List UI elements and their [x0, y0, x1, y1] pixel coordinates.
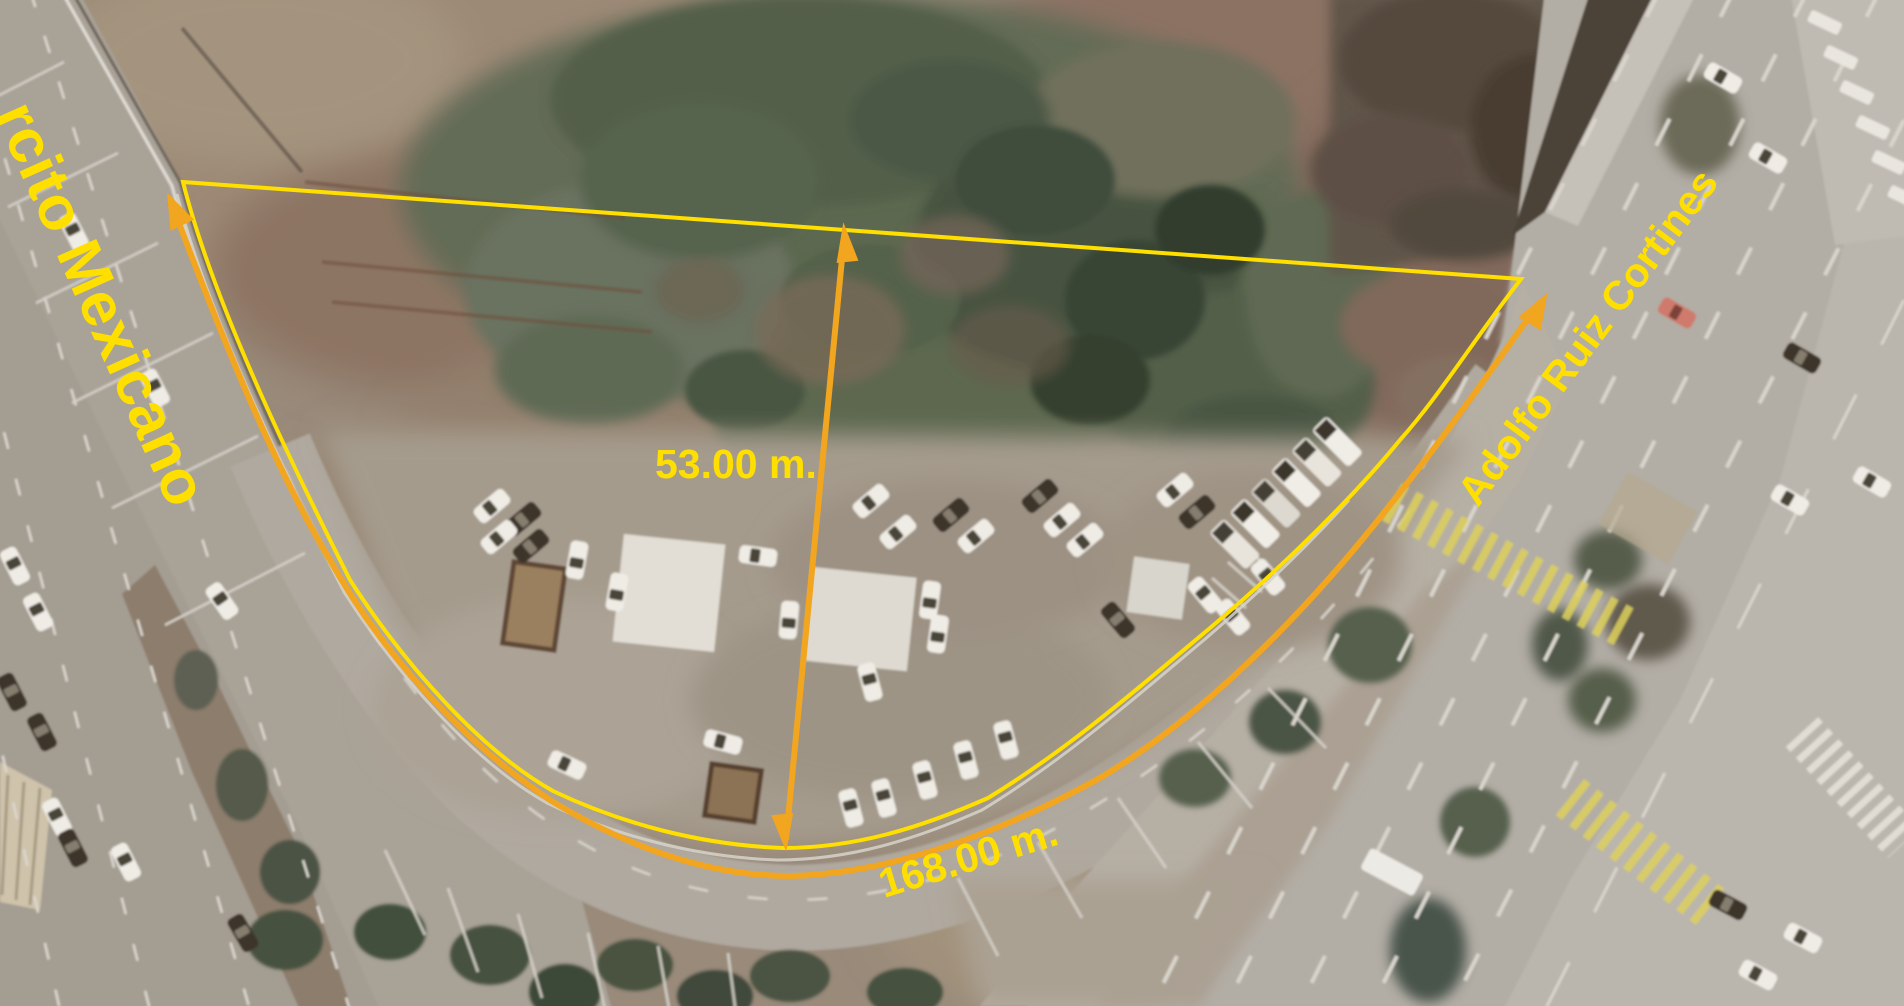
- svg-text:53.00 m.: 53.00 m.: [655, 441, 817, 487]
